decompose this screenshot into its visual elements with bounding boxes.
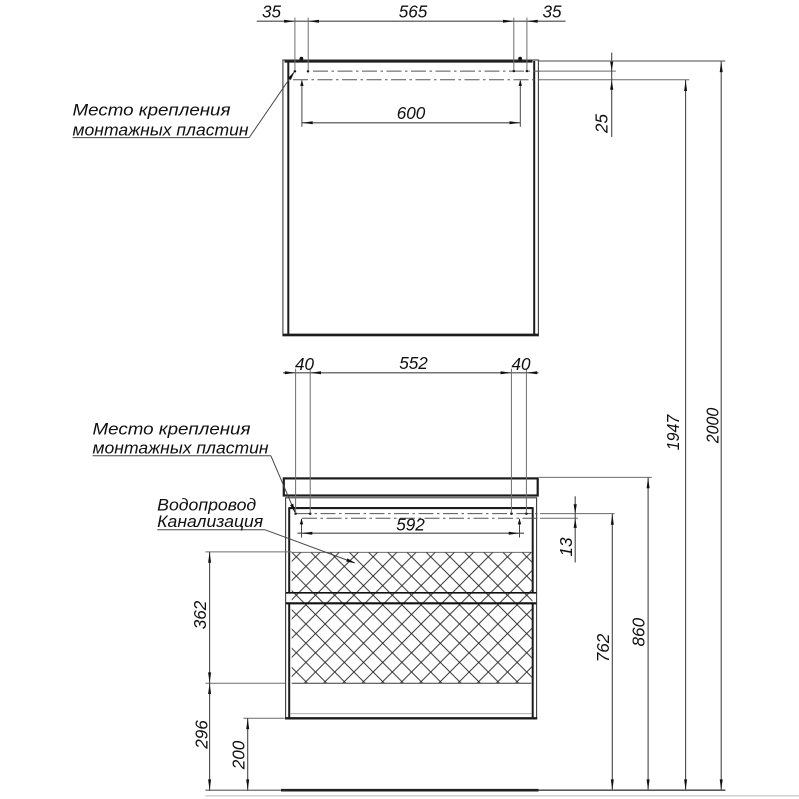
svg-text:296: 296 — [191, 720, 211, 750]
svg-text:40: 40 — [295, 354, 314, 374]
svg-text:200: 200 — [228, 740, 248, 770]
svg-text:592: 592 — [396, 514, 425, 534]
svg-text:860: 860 — [629, 617, 649, 646]
svg-text:Место крепления: Место крепления — [73, 100, 231, 119]
svg-text:монтажных пластин: монтажных пластин — [73, 121, 250, 140]
svg-text:40: 40 — [512, 354, 531, 374]
svg-text:монтажных пластин: монтажных пластин — [93, 438, 270, 457]
svg-text:35: 35 — [543, 2, 562, 22]
svg-text:35: 35 — [262, 2, 281, 22]
svg-text:2000: 2000 — [702, 407, 722, 444]
svg-text:362: 362 — [190, 600, 210, 629]
svg-text:25: 25 — [592, 114, 612, 134]
svg-text:762: 762 — [593, 633, 613, 662]
svg-text:13: 13 — [556, 537, 576, 556]
svg-text:Канализация: Канализация — [157, 512, 263, 531]
svg-text:Место крепления: Место крепления — [93, 419, 251, 438]
svg-text:565: 565 — [399, 1, 428, 21]
svg-text:1947: 1947 — [663, 413, 683, 450]
svg-text:552: 552 — [399, 353, 428, 373]
svg-text:600: 600 — [397, 103, 426, 123]
